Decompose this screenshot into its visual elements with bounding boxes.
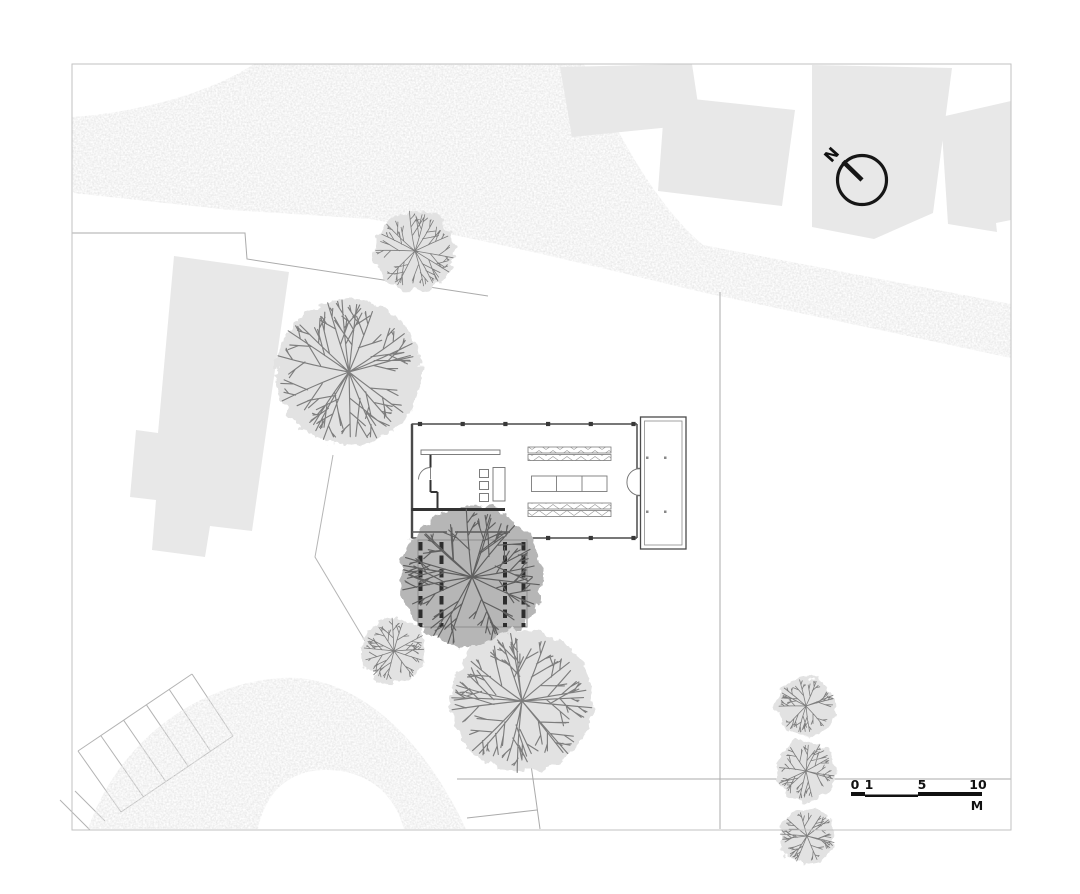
porch-column: [646, 511, 649, 514]
scale-bar-segment: [865, 795, 918, 798]
path-line: [467, 810, 537, 818]
desk: [493, 468, 505, 502]
column: [631, 422, 635, 426]
column: [418, 422, 422, 426]
column: [589, 536, 593, 540]
column: [461, 422, 465, 426]
scale-bar-segment: [918, 792, 982, 796]
reading-table: [532, 476, 608, 492]
scale-bar-segment: [851, 792, 865, 796]
interior-walls: [431, 453, 438, 510]
column: [589, 422, 593, 426]
door-swing-arc: [627, 469, 640, 482]
shelf-unit: [528, 447, 611, 453]
chair: [480, 494, 489, 502]
porch-outer-edge: [641, 417, 687, 549]
left-building-footprint: [130, 256, 289, 557]
column: [503, 422, 507, 426]
door-swing-arc: [627, 482, 640, 496]
scale-tick-label: 5: [918, 777, 927, 792]
chair: [480, 470, 489, 478]
curved-road: [88, 678, 466, 829]
shelf-unit: [528, 503, 611, 509]
scale-tick-label: 0: [851, 777, 860, 792]
porch-column: [664, 457, 667, 460]
building-footprint: [658, 96, 795, 206]
scale-tick-label: 10: [969, 777, 987, 792]
entrance-doors: [627, 469, 641, 496]
service-counter: [421, 450, 505, 502]
porch-inner-edge: [645, 421, 683, 545]
column: [546, 422, 550, 426]
interior-door: [419, 468, 431, 480]
counter: [421, 450, 500, 455]
site-plan-page: N 0 1 5 10 M: [0, 0, 1080, 894]
scale-bar: 0 1 5 10 M: [851, 777, 987, 813]
chair: [480, 482, 489, 490]
column: [631, 536, 635, 540]
porch-column: [646, 457, 649, 460]
scale-tick-label: 1: [865, 777, 874, 792]
column: [546, 536, 550, 540]
table: [532, 476, 608, 492]
porch-column: [664, 511, 667, 514]
shelf-unit: [528, 455, 611, 461]
curved-road-surface: [88, 678, 466, 829]
entrance-porch: [641, 417, 687, 549]
site-plan-drawing: N 0 1 5 10 M: [0, 0, 1080, 894]
building-footprint: [941, 101, 1011, 232]
shelf-unit: [528, 511, 611, 517]
stall-divider: [60, 800, 90, 830]
door-swing-arc: [419, 468, 431, 480]
scale-unit-label: M: [971, 798, 983, 813]
